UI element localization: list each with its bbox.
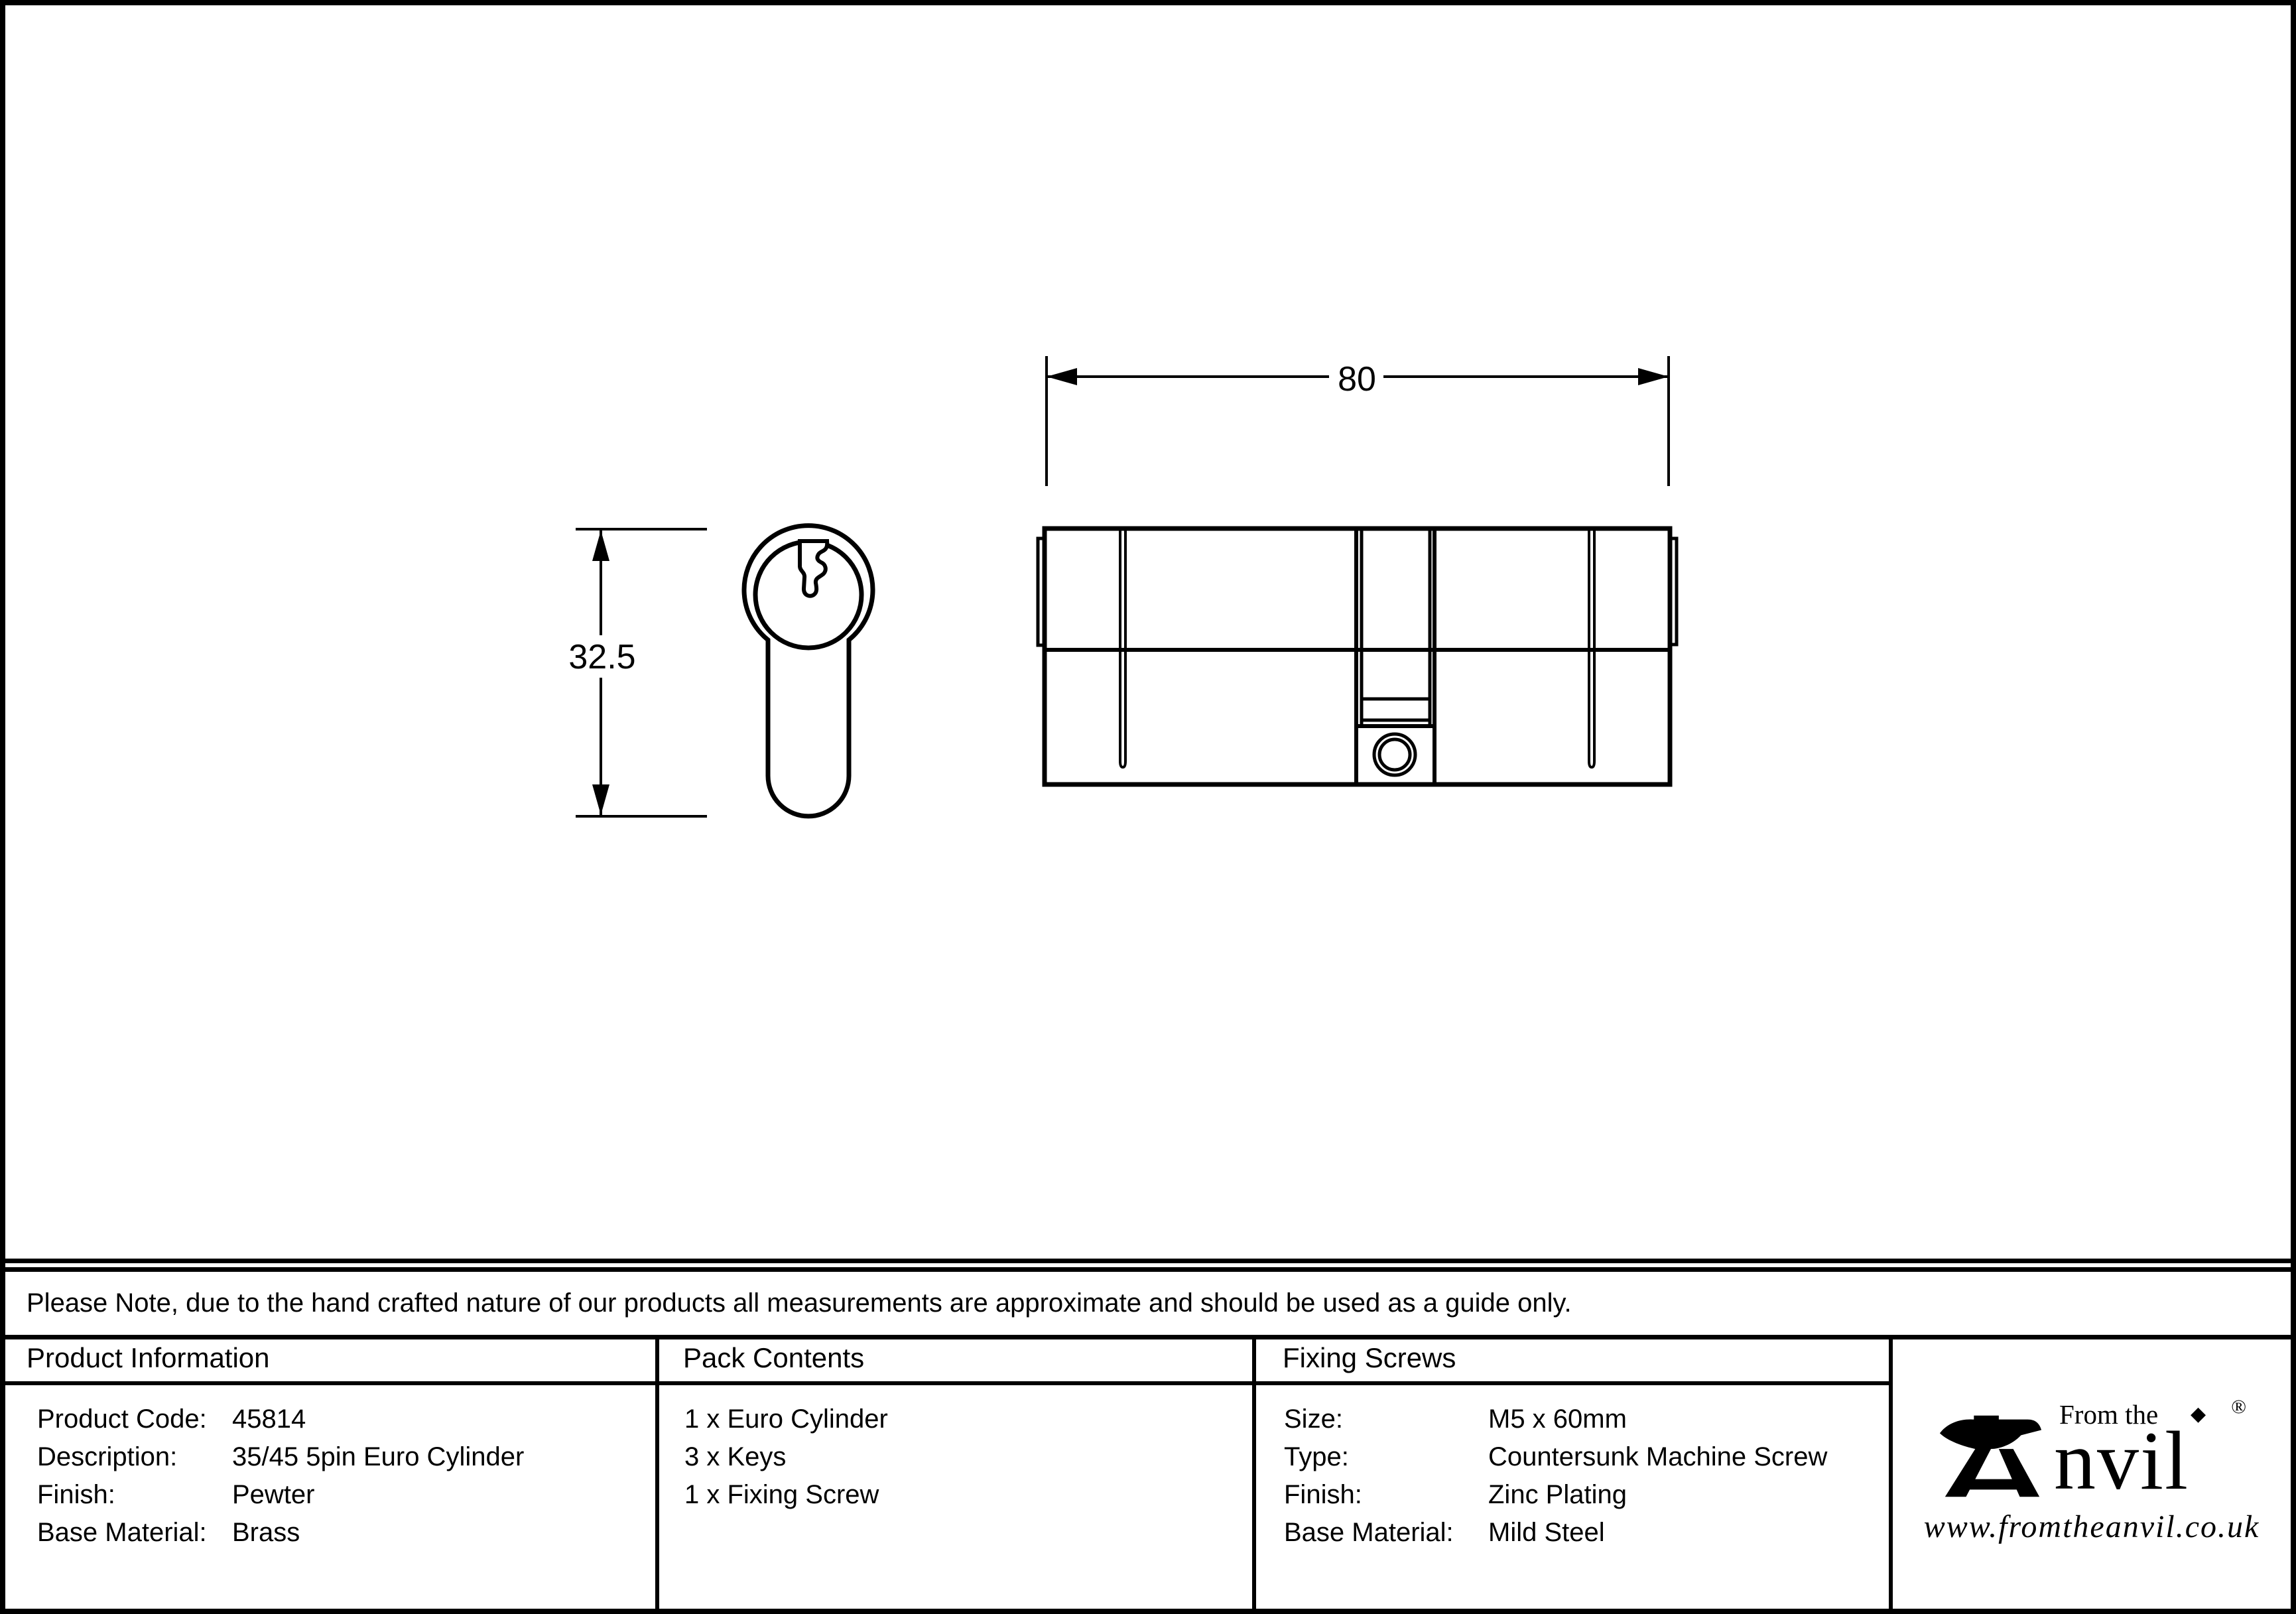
brand-name-suffix: nvil [2054, 1420, 2189, 1503]
field-label: Product Code: [37, 1400, 232, 1438]
field-label: Base Material: [37, 1514, 232, 1552]
field-value: M5 x 60mm [1488, 1400, 1827, 1438]
fixing-screws-table: Size: M5 x 60mm Type: Countersunk Machin… [1284, 1400, 1827, 1552]
divider-line [5, 1267, 2291, 1272]
logo-row: From the ◆ nvil ® [1936, 1398, 2248, 1499]
divider-line [5, 1259, 2291, 1263]
brand-logo: From the ◆ nvil ® www.fromtheanvil.co.uk [1893, 1339, 2291, 1603]
list-item: 1 x Euro Cylinder [684, 1400, 888, 1438]
header-bottom-border [5, 1381, 1889, 1385]
arrow-right-icon [1638, 368, 1669, 385]
brand-url: www.fromtheanvil.co.uk [1924, 1509, 2260, 1545]
field-value: 45814 [232, 1400, 524, 1438]
field-value: Countersunk Machine Screw [1488, 1438, 1827, 1476]
field-label: Type: [1284, 1438, 1488, 1476]
fixing-screws-header: Fixing Screws [1283, 1335, 1456, 1381]
wordmark: From the ◆ nvil ® [2054, 1398, 2225, 1499]
cylinder-side-view [1038, 528, 1677, 784]
spec-sheet: 80 32.5 [0, 0, 2296, 1614]
column-divider [1252, 1335, 1256, 1609]
measurement-note: Please Note, due to the hand crafted nat… [27, 1272, 1572, 1335]
dim-height: 32.5 [568, 529, 707, 816]
registered-trademark-icon: ® [2231, 1396, 2246, 1418]
field-value: Pewter [232, 1476, 524, 1514]
list-item: 1 x Fixing Screw [684, 1476, 888, 1514]
field-label: Finish: [37, 1476, 232, 1514]
arrow-down-icon [592, 784, 609, 815]
diamond-icon: ◆ [2191, 1402, 2206, 1426]
field-value: Brass [232, 1514, 524, 1552]
cylinder-face-view [744, 526, 873, 816]
product-information-header: Product Information [27, 1335, 270, 1381]
field-value: Mild Steel [1488, 1514, 1827, 1552]
arrow-up-icon [592, 530, 609, 561]
list-item: 3 x Keys [684, 1438, 888, 1476]
pack-contents-list: 1 x Euro Cylinder 3 x Keys 1 x Fixing Sc… [684, 1400, 888, 1514]
field-label: Finish: [1284, 1476, 1488, 1514]
pack-contents-header: Pack Contents [683, 1335, 864, 1381]
dim-width-label: 80 [1338, 360, 1376, 399]
field-value: 35/45 5pin Euro Cylinder [232, 1438, 524, 1476]
divider-line [5, 1335, 2291, 1339]
field-label: Size: [1284, 1400, 1488, 1438]
column-divider [655, 1335, 659, 1609]
arrow-left-icon [1047, 368, 1077, 385]
field-value: Zinc Plating [1488, 1476, 1827, 1514]
dim-height-label: 32.5 [568, 638, 635, 676]
dim-width: 80 [1047, 356, 1669, 486]
technical-drawing: 80 32.5 [0, 0, 2296, 1260]
field-label: Base Material: [1284, 1514, 1488, 1552]
product-information-table: Product Code: 45814 Description: 35/45 5… [37, 1400, 524, 1552]
anvil-icon [1936, 1414, 2047, 1498]
field-label: Description: [37, 1438, 232, 1476]
